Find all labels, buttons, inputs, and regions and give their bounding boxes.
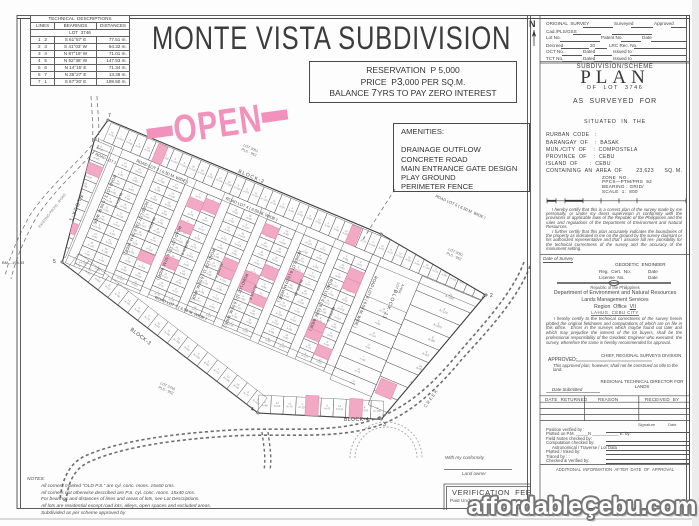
svg-text:A=75: A=75: [294, 309, 301, 314]
svg-text:20: 20: [406, 392, 411, 397]
svg-text:A=65: A=65: [117, 173, 124, 178]
svg-text:A=100: A=100: [188, 167, 196, 173]
svg-text:A=90: A=90: [175, 280, 182, 285]
svg-text:A=83: A=83: [128, 187, 135, 192]
svg-text:A=60: A=60: [98, 258, 105, 263]
svg-text:A=95: A=95: [154, 188, 161, 193]
svg-text:A=63: A=63: [172, 185, 179, 190]
svg-text:A=63: A=63: [275, 249, 282, 254]
svg-text:A=92: A=92: [315, 220, 322, 225]
svg-text:2: 2: [490, 293, 493, 299]
svg-text:A=124: A=124: [116, 137, 124, 143]
svg-text:A=70: A=70: [135, 144, 142, 149]
svg-text:A=95: A=95: [283, 232, 290, 237]
svg-text:A=50: A=50: [161, 212, 168, 217]
svg-text:BLOCK-11: BLOCK-11: [381, 289, 399, 321]
svg-text:A=65: A=65: [179, 271, 186, 276]
svg-text:A=124: A=124: [395, 254, 403, 260]
svg-text:A=103: A=103: [170, 159, 178, 165]
svg-text:A=75: A=75: [360, 239, 367, 244]
svg-text:A=90: A=90: [124, 196, 131, 201]
svg-text:A=63: A=63: [297, 212, 304, 217]
svg-text:BLOCK-4: BLOCK-4: [344, 417, 369, 423]
svg-text:A=75: A=75: [432, 269, 439, 274]
svg-text:A=103: A=103: [197, 171, 205, 177]
svg-text:A=70: A=70: [387, 250, 394, 255]
svg-text:A=63: A=63: [349, 381, 356, 386]
svg-text:A=70: A=70: [190, 245, 197, 250]
svg-text:A=92: A=92: [245, 320, 252, 325]
svg-text:A=80: A=80: [374, 321, 381, 326]
svg-text:A=70: A=70: [270, 201, 277, 206]
svg-text:A=115: A=115: [336, 407, 344, 411]
svg-text:A=100: A=100: [369, 333, 377, 339]
svg-text:A=75: A=75: [378, 247, 385, 252]
svg-text:A=100: A=100: [233, 186, 241, 192]
svg-text:A=92: A=92: [224, 228, 231, 233]
svg-text:A=100: A=100: [373, 409, 381, 413]
svg-text:A=90: A=90: [209, 305, 216, 310]
svg-text:A=92: A=92: [207, 175, 214, 180]
svg-text:A=63: A=63: [242, 329, 249, 334]
svg-text:A=60: A=60: [121, 164, 128, 169]
svg-text:C R E E K: C R E E K: [423, 389, 439, 409]
svg-text:4: 4: [251, 407, 254, 413]
svg-text:A=90: A=90: [216, 287, 223, 292]
svg-text:A=92: A=92: [121, 268, 128, 273]
svg-text:A=92: A=92: [333, 228, 340, 233]
svg-text:A=50: A=50: [194, 236, 201, 241]
svg-text:A=115: A=115: [125, 140, 133, 146]
svg-text:A=50: A=50: [279, 205, 286, 210]
svg-text:A=80: A=80: [264, 339, 271, 344]
svg-text:A=90: A=90: [217, 246, 224, 251]
svg-text:A=80: A=80: [231, 252, 238, 257]
svg-text:A=105: A=105: [224, 182, 232, 188]
svg-text:13: 13: [470, 282, 474, 286]
svg-text:A=72: A=72: [320, 247, 327, 252]
svg-text:A=65: A=65: [260, 285, 267, 290]
svg-text:A=92: A=92: [232, 210, 239, 215]
svg-text:A=105: A=105: [433, 322, 443, 329]
svg-text:A=88: A=88: [268, 330, 275, 335]
svg-text:A=95: A=95: [330, 325, 337, 330]
svg-text:A=95: A=95: [312, 265, 319, 270]
svg-text:A=90: A=90: [274, 404, 281, 408]
svg-text:BLOCK-3: BLOCK-3: [129, 327, 152, 347]
svg-text:A=92: A=92: [84, 252, 91, 257]
svg-text:A=124: A=124: [251, 193, 259, 199]
svg-text:14: 14: [57, 246, 61, 250]
svg-text:A=92: A=92: [316, 360, 323, 365]
svg-text:A=50: A=50: [324, 224, 331, 229]
svg-text:A=80: A=80: [316, 256, 323, 261]
svg-text:A=60: A=60: [359, 357, 366, 362]
svg-text:A=110: A=110: [179, 163, 187, 169]
svg-text:A=60: A=60: [157, 221, 164, 226]
svg-text:A=63: A=63: [421, 351, 429, 358]
svg-text:A=103: A=103: [260, 197, 268, 203]
svg-text:A=80: A=80: [427, 337, 435, 344]
svg-text:BM—194.83: BM—194.83: [2, 260, 25, 265]
svg-text:ROAD LOT 7 ( 6.50 M. WIDE ): ROAD LOT 7 ( 6.50 M. WIDE ): [154, 295, 208, 322]
svg-text:7: 7: [108, 113, 111, 119]
svg-text:N: N: [529, 19, 536, 29]
svg-text:A=124: A=124: [439, 308, 449, 315]
svg-text:A=72: A=72: [243, 190, 250, 195]
svg-text:A=80: A=80: [342, 257, 349, 262]
svg-text:A=75: A=75: [327, 333, 334, 338]
svg-text:A=90: A=90: [441, 273, 448, 278]
svg-text:A=70: A=70: [356, 263, 363, 268]
svg-text:A=100: A=100: [445, 294, 455, 301]
svg-text:A=88: A=88: [246, 216, 253, 221]
svg-text:BLOCK-3: BLOCK-3: [326, 306, 336, 322]
svg-text:9: 9: [61, 238, 64, 242]
svg-text:A=92: A=92: [282, 336, 289, 341]
svg-text:A=63: A=63: [91, 234, 98, 239]
svg-text:A=60: A=60: [415, 366, 423, 373]
svg-text:EXISTING PROVL. ROAD: EXISTING PROVL. ROAD: [38, 192, 67, 228]
svg-text:A=115: A=115: [368, 242, 376, 248]
svg-text:A=83: A=83: [342, 298, 349, 303]
svg-text:A=72: A=72: [305, 345, 312, 350]
svg-text:A=83: A=83: [109, 232, 116, 237]
svg-text:A=65: A=65: [124, 259, 131, 264]
svg-text:A=95: A=95: [131, 179, 138, 184]
svg-text:A=70: A=70: [108, 133, 115, 138]
svg-text:BLOCK-2: BLOCK-2: [237, 169, 266, 186]
svg-text:A=92: A=92: [477, 288, 484, 293]
svg-text:A=70: A=70: [272, 258, 279, 263]
svg-text:A=60: A=60: [288, 209, 295, 214]
svg-text:A=72: A=72: [279, 345, 286, 350]
svg-text:A=60: A=60: [339, 266, 346, 271]
svg-text:A=72: A=72: [301, 291, 308, 296]
svg-text:A=75: A=75: [354, 369, 361, 374]
svg-text:A=63: A=63: [257, 252, 264, 257]
svg-text:A=92: A=92: [290, 318, 297, 323]
svg-text:A=60: A=60: [335, 274, 342, 279]
svg-text:18: 18: [64, 228, 68, 232]
svg-text:A=92: A=92: [364, 345, 371, 350]
svg-text:A=75: A=75: [187, 212, 194, 217]
svg-text:A=70: A=70: [198, 227, 205, 232]
svg-text:A=72: A=72: [158, 283, 165, 288]
svg-text:A=77: A=77: [201, 218, 208, 223]
svg-text:ROAD LOT 5 ( 6.50 M. WIDE ): ROAD LOT 5 ( 6.50 M. WIDE ): [435, 193, 488, 220]
svg-text:A=80: A=80: [306, 216, 313, 221]
svg-text:A=60: A=60: [405, 258, 412, 263]
svg-text:A=75: A=75: [324, 406, 331, 410]
svg-text:A=105: A=105: [57, 239, 65, 245]
svg-text:BLOCK-1: BLOCK-1: [67, 194, 84, 223]
svg-text:A=90: A=90: [249, 311, 256, 316]
svg-text:A=92: A=92: [183, 263, 190, 268]
svg-text:A=77: A=77: [305, 283, 312, 288]
svg-text:A=63: A=63: [254, 261, 261, 266]
svg-text:A=115: A=115: [215, 178, 223, 184]
svg-text:A=105: A=105: [53, 248, 61, 254]
svg-text:A=110: A=110: [403, 394, 413, 401]
svg-text:4: 4: [401, 407, 404, 411]
svg-text:A=75: A=75: [286, 404, 293, 408]
svg-text:A=88: A=88: [261, 403, 268, 407]
svg-text:A=70: A=70: [150, 238, 157, 243]
svg-text:21: 21: [479, 286, 483, 290]
svg-text:A=77: A=77: [172, 289, 179, 294]
svg-text:5: 5: [53, 259, 56, 265]
svg-text:A=80: A=80: [228, 219, 235, 224]
svg-text:A=60: A=60: [414, 262, 421, 267]
svg-text:A=75: A=75: [220, 237, 227, 242]
svg-text:A=60: A=60: [286, 327, 293, 332]
svg-text:A=92: A=92: [62, 230, 69, 235]
svg-text:A=72: A=72: [409, 380, 417, 387]
svg-text:A=103: A=103: [422, 265, 430, 271]
